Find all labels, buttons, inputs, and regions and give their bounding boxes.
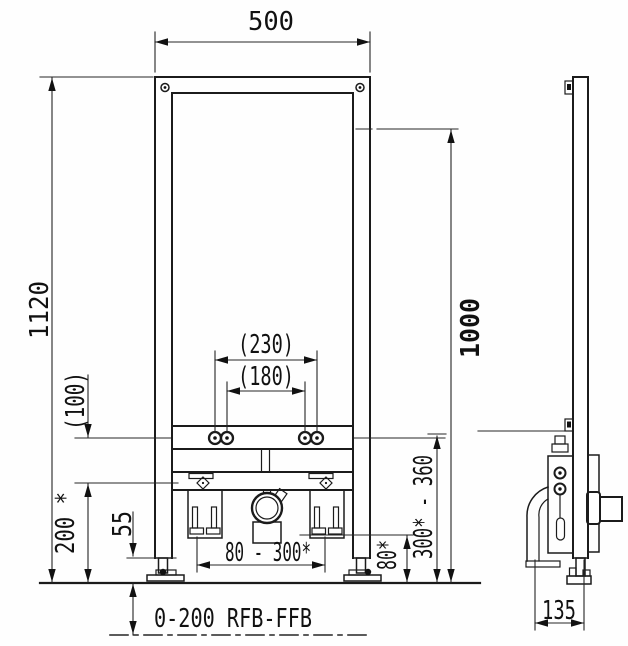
slide-nut-left <box>189 474 213 479</box>
dim-500: 500 <box>155 7 370 72</box>
left-foot-plate <box>147 575 184 581</box>
slot-foot <box>190 528 204 534</box>
drain-pipe-inner <box>256 497 278 519</box>
right-foot-plate <box>344 575 381 581</box>
outlet-pipe <box>599 497 622 521</box>
dim-1120-label: 1120 <box>25 281 55 339</box>
side-foot-step-left <box>570 568 577 576</box>
dim-300-360: 300* - 360 <box>409 434 446 582</box>
dim-55: 55 <box>108 511 176 558</box>
dim-180: (180) <box>227 362 305 432</box>
dim-300-360-label: 300* - 360 <box>409 455 439 559</box>
dim-135-label: 135 <box>542 596 576 626</box>
bolt-dot <box>315 436 319 440</box>
dim-rfb-label: 0-200 RFB-FFB <box>154 604 312 634</box>
adjust-slot <box>557 518 565 540</box>
bolt-dot <box>225 436 229 440</box>
plate <box>172 426 353 449</box>
screw-dot-left <box>202 482 204 484</box>
elbow-inner <box>539 499 548 561</box>
drawing-svg: 500 1120 1000 (230) <box>0 0 628 646</box>
elbow-base <box>526 561 560 567</box>
mid-clip-fill <box>567 422 571 428</box>
corner-screw-right-dot <box>359 86 362 89</box>
dim-0-200: 0-200 RFB-FFB <box>129 583 312 635</box>
dim-1000-label: 1000 <box>456 298 486 358</box>
side-view <box>478 77 622 584</box>
dimensions: 500 1120 1000 (230) <box>25 7 584 635</box>
technical-drawing: 500 1120 1000 (230) <box>0 0 628 646</box>
dim-55-label: 55 <box>108 511 138 537</box>
right-foot-spindle <box>357 558 366 573</box>
dim-200: 200 * <box>51 484 92 582</box>
dim-80-300: 80 - 300* <box>197 537 325 572</box>
bolt-dot <box>303 436 307 440</box>
lower-rail <box>172 472 353 490</box>
top-clip-fill <box>567 84 571 90</box>
water-connection-lower-dot <box>558 487 561 490</box>
frame <box>155 77 370 558</box>
dim-500-label: 500 <box>248 7 294 37</box>
right-foot-bolt <box>365 569 371 575</box>
slot-foot <box>207 528 221 534</box>
dim-230-label: (230) <box>238 330 294 360</box>
slot-foot <box>329 528 343 534</box>
slot <box>212 507 217 528</box>
side-foot <box>567 558 591 584</box>
front-view <box>75 77 445 581</box>
slot <box>334 507 339 528</box>
center-tab <box>262 449 270 472</box>
dim-80-label: 80* <box>373 540 403 570</box>
elbow-outer <box>527 487 548 561</box>
side-foot-plate <box>567 576 591 584</box>
slot-foot <box>312 528 326 534</box>
dim-180-label: (180) <box>238 362 294 392</box>
left-foot-bolt <box>160 569 166 575</box>
drain-assembly <box>252 489 287 543</box>
water-connection-upper-dot <box>558 471 561 474</box>
fitting-cap <box>555 436 565 444</box>
dim-100: (100) <box>61 372 92 437</box>
slot <box>193 507 198 528</box>
dim-100-label: (100) <box>61 372 91 430</box>
mounting-plate <box>172 426 353 472</box>
corner-screw-left-dot <box>164 86 167 89</box>
dim-200-label: 200 * <box>51 492 81 554</box>
dim-80-300-label: 80 - 300* <box>225 538 311 568</box>
dim-1120: 1120 <box>25 77 153 583</box>
bolt-dot <box>213 436 217 440</box>
fitting-nut <box>552 444 568 452</box>
profile <box>565 77 588 558</box>
screw-dot-right <box>325 482 327 484</box>
slide-nut-right <box>309 474 333 479</box>
slot <box>315 507 320 528</box>
